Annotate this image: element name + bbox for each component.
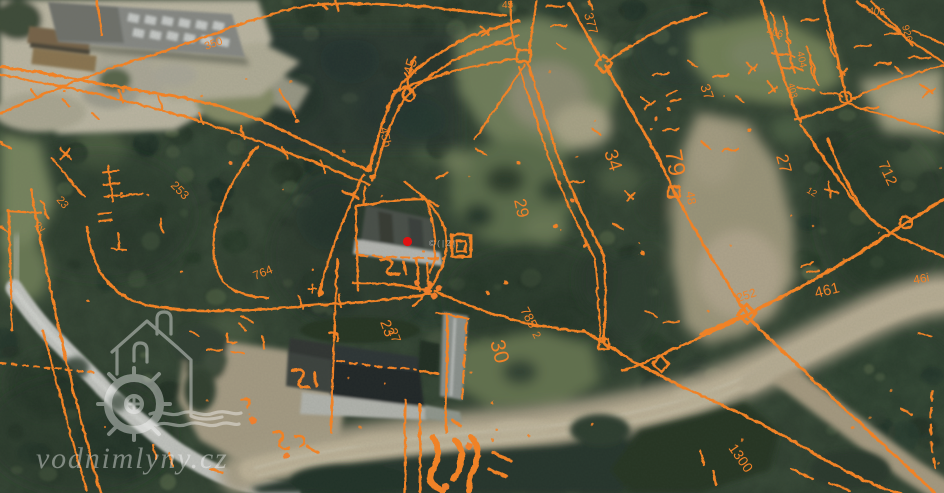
svg-text:406: 406 <box>868 6 886 18</box>
svg-text:48: 48 <box>683 190 699 206</box>
svg-text:© ( | 2 |: © ( | 2 | <box>429 239 455 248</box>
svg-text:45: 45 <box>502 0 514 11</box>
svg-text:vodnimlyny.cz: vodnimlyny.cz <box>36 442 229 475</box>
svg-text:29: 29 <box>510 197 533 219</box>
svg-text:79: 79 <box>659 147 690 178</box>
svg-text:46i: 46i <box>912 270 930 287</box>
